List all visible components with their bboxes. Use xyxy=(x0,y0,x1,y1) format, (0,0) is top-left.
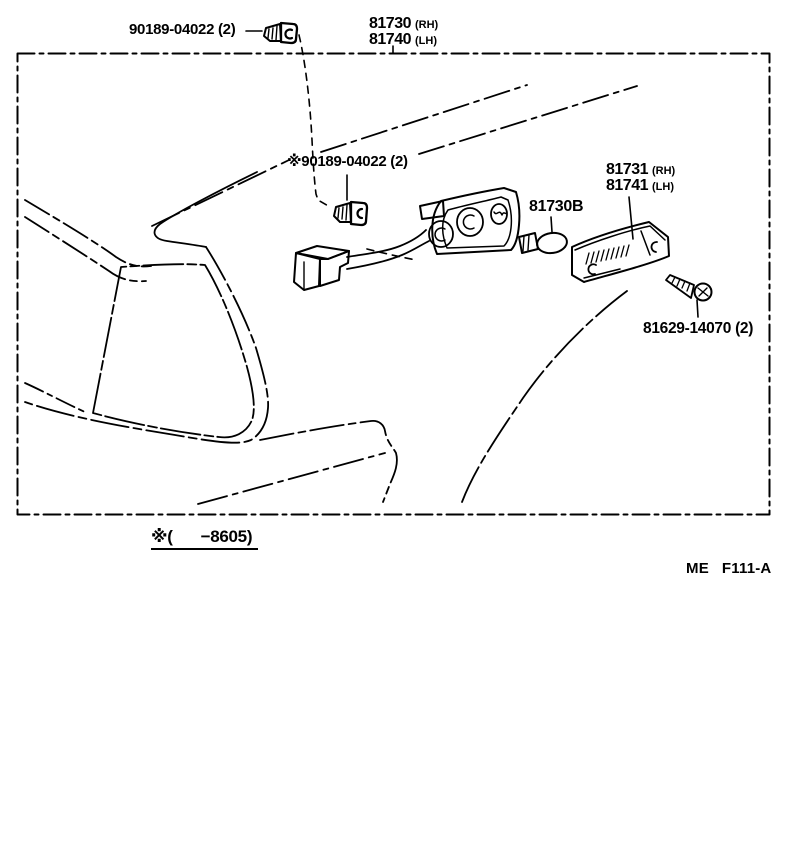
label-clip-inner: ※90189-04022 (2) xyxy=(287,154,408,169)
part-number: 90189-04022 (2) xyxy=(129,21,235,38)
wire-connector-icon xyxy=(294,246,349,290)
label-lamp-assy: 81730 (RH) 81740 (LH) xyxy=(369,16,438,47)
diagram-line-art xyxy=(0,0,800,866)
screw-icon xyxy=(666,275,712,301)
label-screw: 81629-14070 (2) xyxy=(643,321,753,337)
figure-code: F111-A xyxy=(722,560,772,577)
car-body-outline xyxy=(25,85,637,504)
bulb-icon xyxy=(519,231,568,255)
part-number: 81730 xyxy=(369,16,411,32)
part-number: 81730B xyxy=(529,198,583,215)
wire-harness xyxy=(347,230,429,269)
applicability-footnote: ※(−8605) xyxy=(151,528,258,550)
label-lens: 81731 (RH) 81741 (LH) xyxy=(606,162,675,193)
lens-icon xyxy=(572,222,669,282)
part-number: 81731 xyxy=(606,162,648,178)
side-marker: (LH) xyxy=(415,36,437,47)
label-clip-top: 90189-04022 (2) xyxy=(129,22,235,37)
side-marker: (LH) xyxy=(652,182,674,193)
part-number: ※90189-04022 (2) xyxy=(287,153,408,170)
part-number: 81740 xyxy=(369,32,411,48)
fastener-clip-inner-icon xyxy=(334,202,367,225)
footnote-value: −8605) xyxy=(201,527,253,546)
figure-border xyxy=(18,54,770,515)
figure-reference: MEF111-A xyxy=(686,561,771,576)
part-number: 81629-14070 (2) xyxy=(643,320,753,337)
figure-org: ME xyxy=(686,560,709,577)
footnote-prefix: ※( xyxy=(151,527,173,546)
label-bulb: 81730B xyxy=(529,199,583,215)
parts-diagram-page: 90189-04022 (2) 81730 (RH) 81740 (LH) ※9… xyxy=(0,0,800,866)
lamp-housing-icon xyxy=(420,188,519,254)
fastener-clip-top-icon xyxy=(264,23,297,43)
side-marker: (RH) xyxy=(652,166,675,177)
side-marker: (RH) xyxy=(415,20,438,31)
part-number: 81741 xyxy=(606,178,648,194)
